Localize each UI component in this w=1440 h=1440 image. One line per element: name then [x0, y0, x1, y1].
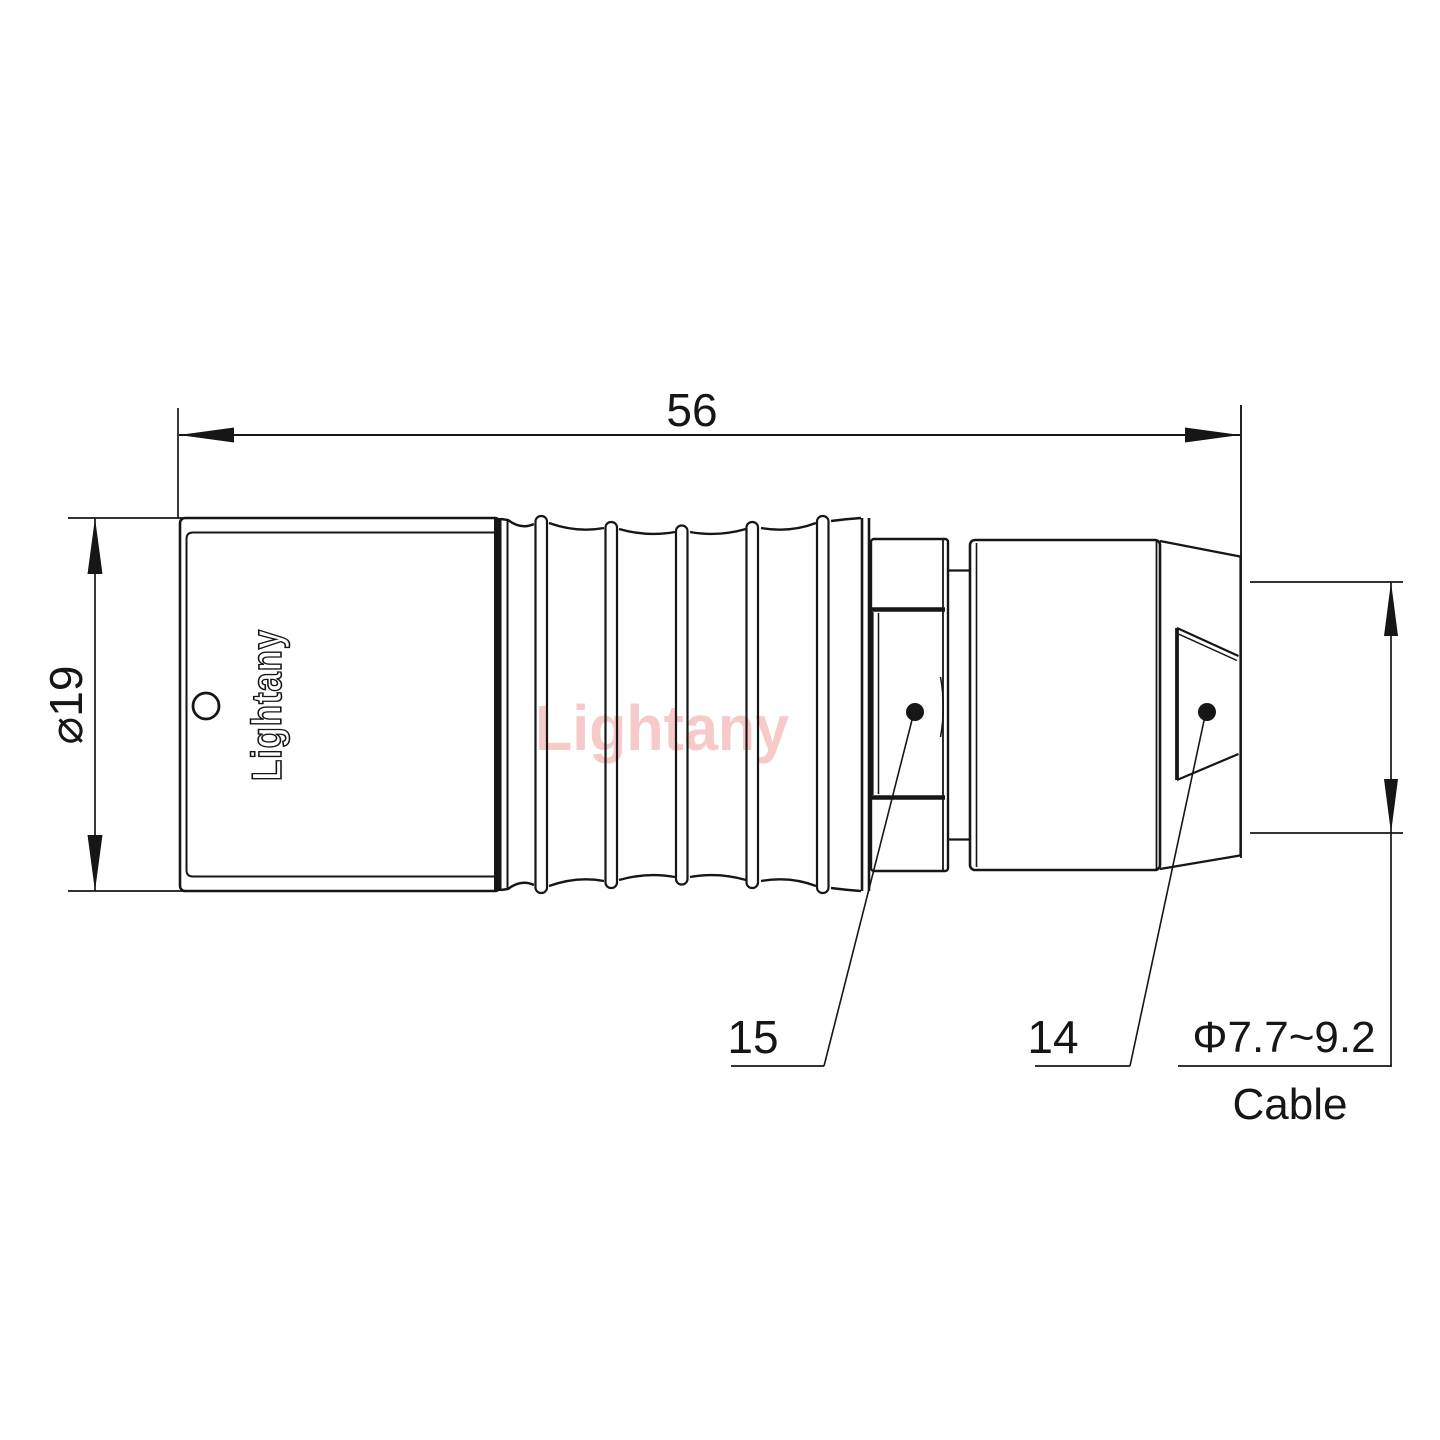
- technical-drawing-canvas: Lightany 56 ⌀19 Φ7.7~9.2 Cable 15: [0, 0, 1440, 1440]
- cable-arrow-top: [1384, 582, 1398, 636]
- dim19-value: ⌀19: [40, 666, 92, 745]
- backshell: [970, 540, 1241, 870]
- boot-rib-5: [817, 516, 829, 893]
- dim-cable-entry: Φ7.7~9.2 Cable: [1178, 582, 1403, 1129]
- cable-hole-bottom-edge: [1177, 754, 1239, 780]
- cable-hole-top-edge: [1177, 628, 1239, 656]
- shell-hole: [193, 693, 219, 719]
- backshell-outline: [970, 540, 1160, 870]
- backshell-chamfer-bottom: [1160, 856, 1240, 870]
- watermark-text: Lightany: [535, 692, 789, 764]
- shell-logo-text: Lightany: [243, 629, 290, 781]
- drawing-sheet: Lightany 56 ⌀19 Φ7.7~9.2 Cable 15: [0, 0, 1440, 1440]
- cable-diameter-value: Φ7.7~9.2: [1192, 1013, 1375, 1062]
- front-shell-inner-line: [187, 533, 495, 877]
- watermark-layer: Lightany: [535, 692, 789, 764]
- dim19-arrow-top: [88, 518, 103, 574]
- label-15-dot: [906, 703, 924, 721]
- cable-label: Cable: [1233, 1080, 1348, 1129]
- dim56-value: 56: [666, 384, 717, 436]
- dim19-arrow-bottom: [88, 835, 103, 891]
- boot-clamp-bar: [494, 518, 502, 891]
- boot-bottom-outline: [501, 875, 861, 891]
- dim56-arrow-right: [1185, 428, 1240, 443]
- front-shell: Lightany: [180, 518, 500, 891]
- dim-shell-diameter: ⌀19: [40, 518, 183, 891]
- label-backshell-14: 14: [1027, 703, 1216, 1066]
- dim56-arrow-left: [179, 428, 234, 443]
- cable-arrow-bottom: [1384, 779, 1398, 833]
- dim-overall-length: 56: [178, 384, 1241, 858]
- label-14-text: 14: [1027, 1011, 1078, 1063]
- backshell-chamfer-top: [1160, 541, 1240, 557]
- front-shell-outline: [180, 518, 500, 891]
- cable-hole-top-inner-edge: [1179, 634, 1238, 661]
- label-15-text: 15: [727, 1011, 778, 1063]
- label-14-dot: [1198, 703, 1216, 721]
